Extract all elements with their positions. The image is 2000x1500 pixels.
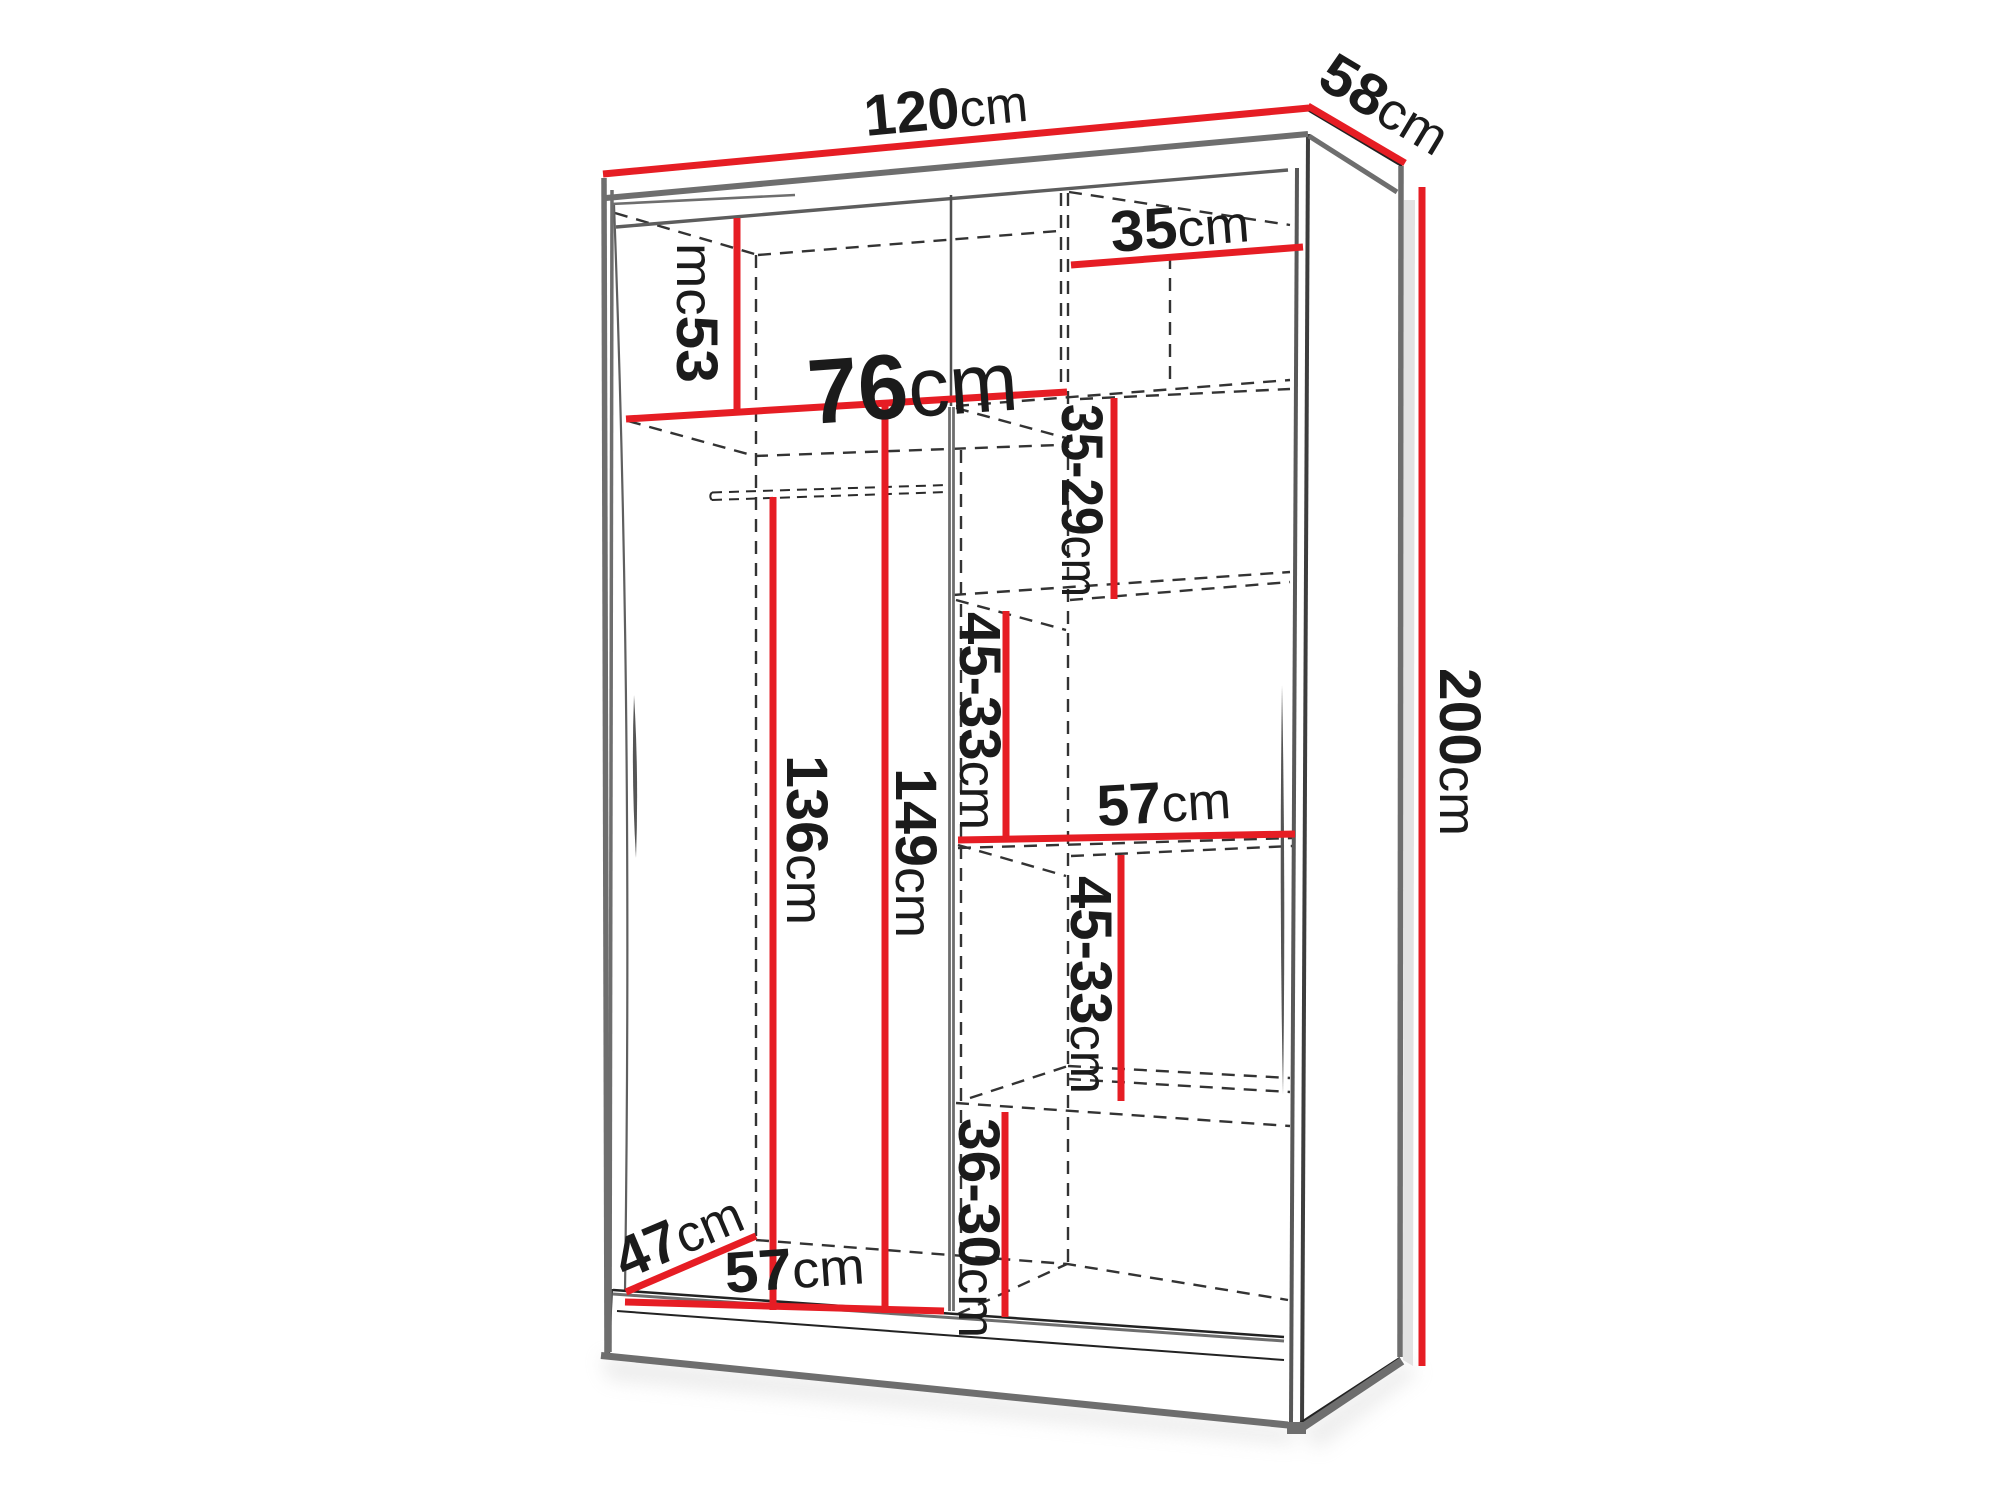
svg-text:35cm: 35cm bbox=[1108, 189, 1252, 265]
svg-text:76cm: 76cm bbox=[804, 328, 1021, 444]
svg-text:35-29cm: 35-29cm bbox=[1049, 404, 1114, 597]
svg-text:36-30cm: 36-30cm bbox=[946, 1118, 1011, 1338]
svg-text:45-33cm: 45-33cm bbox=[1058, 876, 1123, 1094]
svg-text:200cm: 200cm bbox=[1427, 668, 1492, 836]
svg-text:136cm: 136cm bbox=[774, 755, 839, 925]
svg-text:149cm: 149cm bbox=[883, 768, 948, 938]
svg-text:mc53: mc53 bbox=[664, 243, 729, 383]
svg-text:57cm: 57cm bbox=[722, 1231, 866, 1306]
svg-text:57cm: 57cm bbox=[1095, 766, 1233, 839]
svg-text:45-33cm: 45-33cm bbox=[947, 612, 1012, 830]
